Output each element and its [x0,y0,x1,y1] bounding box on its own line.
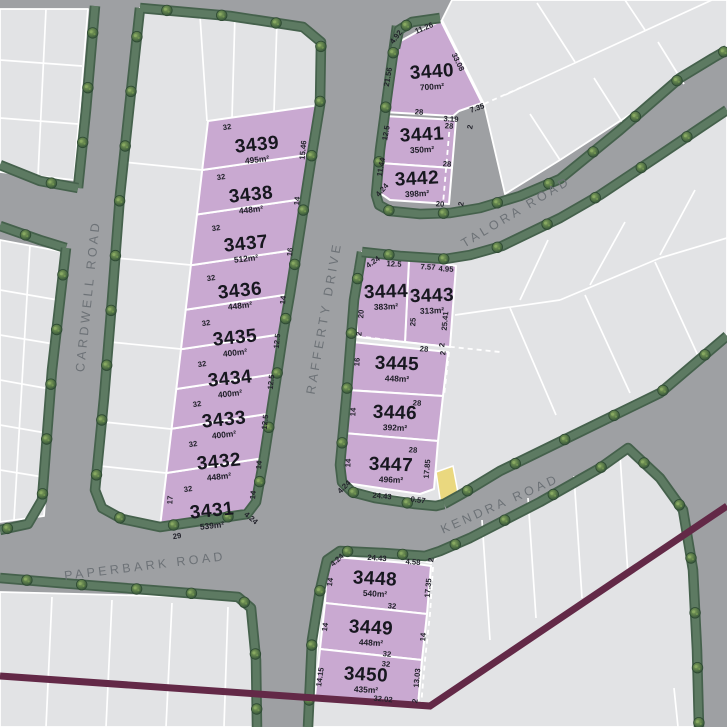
tree-icon [639,458,650,469]
tree-icon [46,379,57,390]
tree-icon [307,640,318,651]
tree-icon [110,250,121,261]
tree-icon [120,141,131,152]
tree-icon [83,82,94,93]
lot-dimension-label: 32 [211,223,221,233]
lot-dimension-label: 20 [435,199,444,208]
lot-dimension-label: 32 [216,172,226,182]
lot-area: 448m² [359,637,384,648]
tree-icon [168,520,179,531]
tree-icon [672,75,683,86]
lot-dimension-label: 32 [206,273,216,283]
tree-icon [548,489,559,500]
lot-dimension-label: 2 [437,342,446,347]
road-label-rafferty-drive: RAFFERTY DRIVE [304,241,345,396]
tree-icon [46,178,57,189]
lot-number: 3442 [394,167,439,190]
block-southwest [0,592,255,727]
lot-dimension-label: 24.43 [367,553,387,563]
lot-dimension-label: 4.24 [242,510,260,527]
tree-icon [41,434,52,445]
tree-icon [342,546,353,557]
lot-dimension-label: 32 [197,359,207,369]
lot-dimension-label: 14 [248,490,258,500]
tree-icon [674,500,685,511]
lot-dimension-label: 2 [354,332,363,337]
tree-icon [131,584,142,595]
tree-icon [719,47,727,58]
lot-number: 3441 [399,123,444,146]
lot-dimension-label: 14 [348,407,358,417]
lot-dimension-label: 12.5 [386,259,402,269]
tree-icon [348,487,359,498]
tree-icon [690,608,701,619]
tree-icon [450,539,461,550]
tree-icon [271,18,282,29]
tree-icon [588,147,599,158]
tree-icon [97,415,108,426]
tree-icon [388,47,399,58]
lot-dimension-label: 25.41 [440,310,451,331]
lot-dimension-label: 32 [188,439,198,449]
tree-icon [289,259,300,270]
lot-dimension-label: 17.85 [422,458,433,479]
lot-dimension-label: 25 [408,317,417,327]
tree-icon [254,476,265,487]
tree-icon [280,313,291,324]
tree-icon [510,458,521,469]
tree-icon [58,270,69,281]
lot-number: 3449 [348,616,393,639]
tree-icon [250,649,261,660]
lot-dimension-label: 16 [352,357,362,366]
tree-icon [114,196,125,207]
lot-dimension-label: 28 [419,344,429,354]
lot-area: 539m² [199,519,224,531]
tree-icon [609,410,620,421]
lot-dimension-label: 32 [382,649,391,659]
lot-dimension-label: 28 [412,398,422,408]
tree-icon [315,585,326,596]
lot-dimension-label: 2 [438,350,447,355]
lot-dimension-label: 32 [201,318,211,328]
lot-dimension-label: 14 [343,458,353,468]
lot-dimension-label: 4.95 [438,264,454,274]
tree-icon [101,360,112,371]
lot-dimension-label: 12.5 [260,413,271,430]
tree-icon [700,350,711,361]
lot-dimension-label: 14 [418,632,428,642]
tree-icon [20,230,31,241]
tree-icon [692,662,703,673]
lot-area: 496m² [379,474,404,485]
map-canvas: 3431539m²321729144.243432448m²3214343340… [0,0,727,727]
tree-icon [132,31,143,42]
lot-dimension-label: 13.03 [412,668,423,688]
road-label-cardwell-road: CARDWELL ROAD [73,219,103,372]
lot-dimension-label: 28 [408,445,418,455]
lot-number: 3444 [364,281,409,304]
tree-icon [694,717,705,727]
tree-icon [77,137,88,148]
lot-dimension-label: 32 [387,601,396,611]
tree-icon [686,553,697,564]
lot-dimension-label: 4.58 [405,557,421,567]
tree-icon [352,273,363,284]
tree-icon [316,41,327,52]
lot-area: 448m² [385,373,410,384]
lot-dimension-label: 24.43 [372,491,392,502]
lot-dimension-label: 32 [192,399,202,409]
tree-icon [37,489,48,500]
tree-icon [2,523,13,534]
tree-icon [492,242,503,253]
lot-dimension-label: 7.57 [420,262,435,272]
tree-icon [186,588,197,599]
lot-dimension-label: 16 [285,247,295,256]
tree-icon [106,305,117,316]
tree-icon [658,385,669,396]
tree-icon [401,20,412,31]
tree-icon [239,597,250,608]
lot-area: 383m² [374,301,399,312]
lot-dimension-label: 32 [183,484,193,494]
tree-icon [91,470,102,481]
lot-dimension-label: 32 [222,122,232,132]
lot-dimension-label: 2 [456,201,466,207]
tree-icon [115,513,126,524]
tree-icon [22,575,33,586]
lot-dimension-label: 32 [381,659,390,669]
subdivision-map: 3431539m²321729144.243432448m²3214343340… [0,0,727,727]
tree-icon [492,198,503,209]
lot-dimension-label: 17 [165,495,175,504]
tree-icon [438,254,449,265]
lot-number: 3448 [352,567,397,590]
tree-icon [462,485,473,496]
tree-icon [216,10,227,21]
tree-icon [162,5,173,16]
lot-dimension-label: 29 [172,531,182,541]
lot-dimension-label: 20 [356,309,366,318]
lot-area: 700m² [420,81,445,93]
lot-area: 350m² [410,144,435,155]
tree-icon [542,219,553,230]
lot-area: 540m² [363,588,388,599]
tree-icon [636,162,647,173]
tree-icon [682,132,693,143]
tree-icon [438,208,449,219]
tree-icon [251,704,262,715]
tree-icon [126,86,137,97]
lot-number: 3447 [369,454,414,477]
tree-icon [315,96,326,107]
tree-icon [590,192,601,203]
lot-dimension-label: 12.5 [272,332,283,349]
lot-dimension-label: 32.02 [373,694,393,705]
lot-area: 392m² [383,422,408,433]
lot-area: 398m² [405,188,430,199]
tree-icon [337,438,348,449]
lot-dimension-label: 28 [414,107,424,116]
lot-number: 3440 [409,60,455,84]
tree-icon [384,205,395,216]
lot-dimension-label: 2 [465,124,475,130]
lot-dimension-label: 14 [254,460,264,470]
tree-icon [380,102,391,113]
lot-dimension-label: 14 [292,196,302,206]
tree-icon [306,150,317,161]
lot-dimension-label: 28 [442,159,452,168]
tree-icon [87,28,98,39]
lot-dimension-label: 14 [278,295,288,305]
tree-icon [559,434,570,445]
lot-dimension-label: 12.5 [266,373,277,390]
tree-icon [499,515,510,526]
lot-dimension-label: 17.35 [423,577,434,598]
road-label-paperbark-road: PAPERBARK ROAD [63,549,226,583]
lot-number: 3446 [373,402,418,425]
lot-number: 3443 [410,285,455,308]
tree-icon [342,383,353,394]
tree-icon [596,462,607,473]
lot-dimension-label: 28 [444,121,454,130]
tree-icon [630,111,641,122]
lot-number: 3445 [375,353,420,376]
tree-icon [51,324,62,335]
